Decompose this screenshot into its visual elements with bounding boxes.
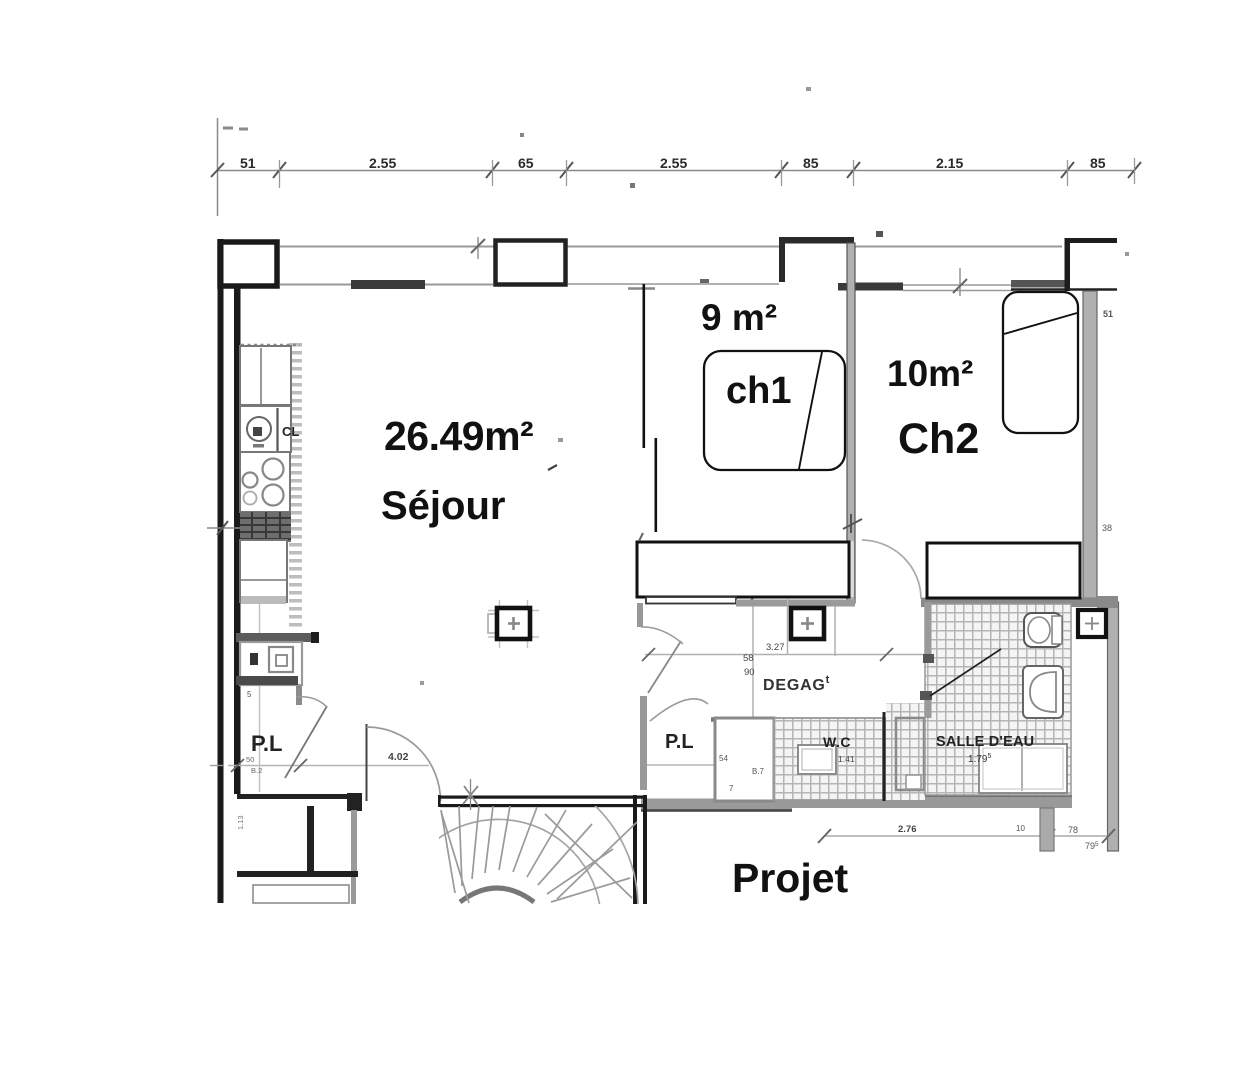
svg-text:50: 50 (246, 755, 254, 764)
svg-text:SALLE D'EAU: SALLE D'EAU (936, 734, 1034, 750)
svg-text:2.55: 2.55 (369, 155, 396, 171)
svg-text:Ch2: Ch2 (898, 415, 979, 463)
svg-text:7: 7 (729, 784, 734, 793)
svg-text:5: 5 (247, 690, 252, 699)
svg-text:1.13: 1.13 (236, 815, 245, 830)
svg-text:10: 10 (1016, 824, 1025, 833)
svg-text:85: 85 (803, 155, 819, 171)
svg-text:B.7: B.7 (752, 767, 765, 776)
svg-text:2.76: 2.76 (898, 824, 917, 835)
svg-text:Projet: Projet (732, 855, 849, 901)
svg-text:26.49m²: 26.49m² (384, 413, 533, 459)
svg-text:2.55: 2.55 (660, 155, 687, 171)
svg-text:P.L: P.L (251, 731, 282, 756)
svg-text:3.27: 3.27 (766, 642, 785, 653)
svg-text:54: 54 (719, 754, 728, 763)
svg-text:W.C: W.C (823, 734, 851, 750)
svg-text:65: 65 (518, 155, 534, 171)
svg-text:DEGAGt: DEGAGt (763, 674, 830, 694)
svg-text:9 m²: 9 m² (701, 297, 777, 338)
svg-text:P.L: P.L (665, 731, 694, 753)
svg-text:CL: CL (282, 424, 299, 439)
svg-text:Séjour: Séjour (381, 484, 505, 528)
svg-text:ch1: ch1 (726, 370, 791, 412)
svg-text:51: 51 (240, 155, 256, 171)
svg-text:10m²: 10m² (887, 353, 973, 394)
svg-text:1.41: 1.41 (838, 754, 855, 764)
svg-text:38: 38 (1102, 523, 1112, 533)
svg-text:51: 51 (1103, 309, 1113, 319)
svg-text:4.02: 4.02 (388, 751, 409, 763)
svg-text:78: 78 (1068, 825, 1078, 835)
svg-text:B.2: B.2 (251, 766, 262, 775)
svg-text:90: 90 (744, 667, 755, 678)
svg-text:85: 85 (1090, 155, 1106, 171)
svg-text:2.15: 2.15 (936, 155, 963, 171)
svg-text:58: 58 (743, 653, 754, 664)
